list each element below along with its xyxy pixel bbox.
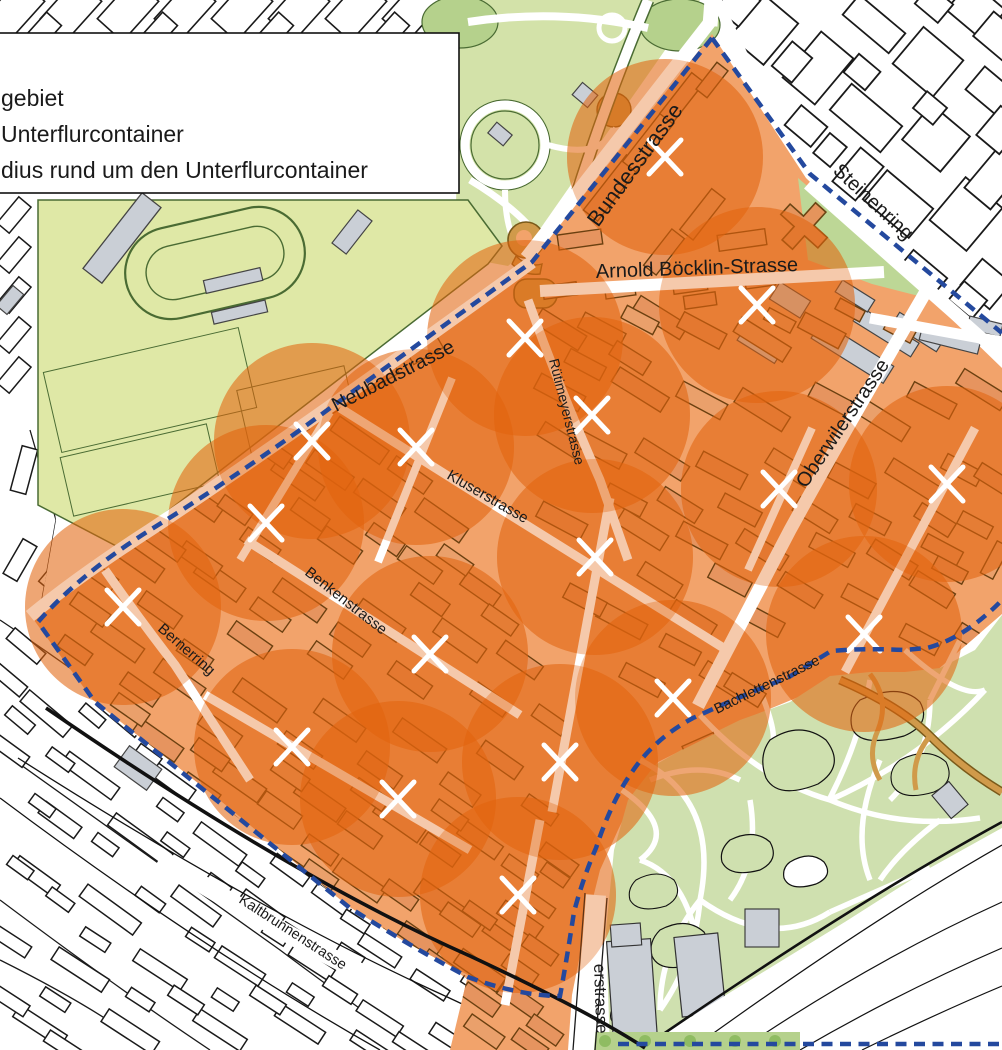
svg-text:Unterflurcontainer: Unterflurcontainer <box>1 121 184 147</box>
svg-text:gebiet: gebiet <box>1 85 64 111</box>
svg-text:erstrasse: erstrasse <box>590 963 611 1034</box>
svg-text:dius rund um den Unterflurcont: dius rund um den Unterflurcontainer <box>1 157 368 183</box>
